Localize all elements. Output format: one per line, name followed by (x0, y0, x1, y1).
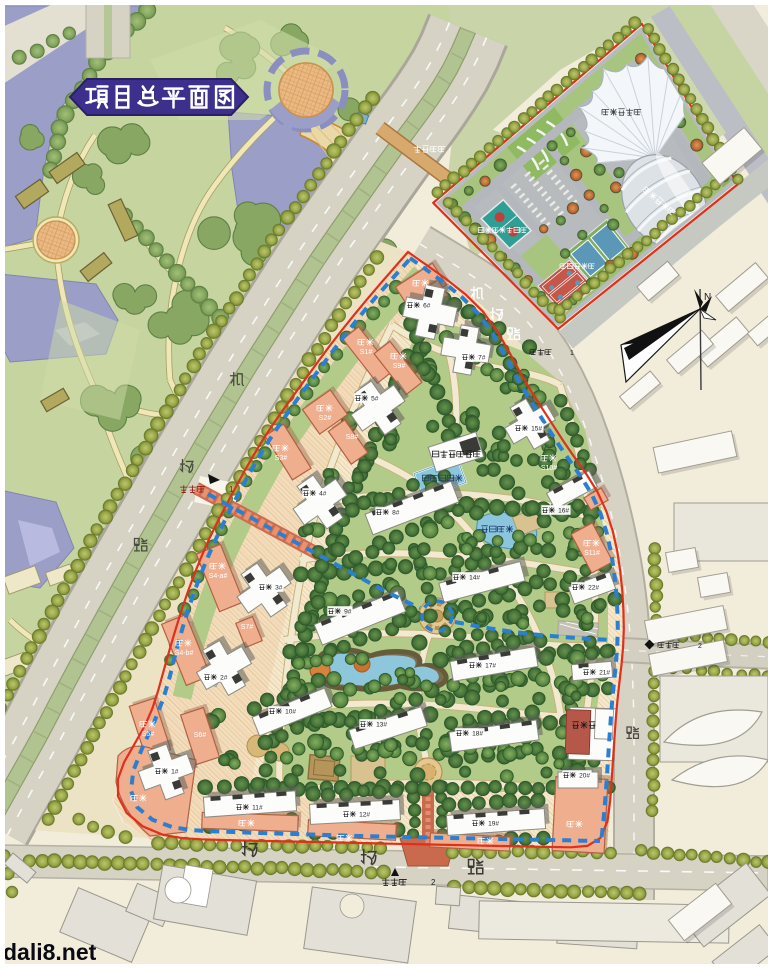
svg-text:S11#: S11# (584, 550, 600, 557)
svg-text:2#: 2# (220, 675, 228, 682)
svg-text:7#: 7# (478, 355, 486, 362)
svg-text:1: 1 (570, 350, 574, 357)
svg-text:20#: 20# (579, 773, 590, 780)
svg-text:12#: 12# (359, 812, 370, 819)
svg-text:3#: 3# (275, 585, 283, 592)
svg-text:17#: 17# (485, 663, 496, 670)
svg-text:N: N (704, 292, 711, 303)
svg-text:11#: 11# (252, 805, 263, 812)
svg-text:S5#: S5# (142, 731, 155, 738)
svg-text:19#: 19# (488, 821, 499, 828)
svg-text:S1#: S1# (360, 349, 373, 356)
svg-text:S9#: S9# (393, 363, 406, 370)
svg-text:2: 2 (431, 878, 436, 887)
svg-text:5#: 5# (371, 396, 379, 403)
svg-text:6#: 6# (423, 303, 431, 310)
svg-text:16#: 16# (558, 508, 569, 515)
svg-text:S4-b#: S4-b# (175, 650, 194, 657)
svg-text:S3#: S3# (275, 455, 288, 462)
svg-text:14#: 14# (469, 575, 480, 582)
svg-text:1: 1 (229, 485, 234, 494)
svg-text:S7#: S7# (241, 624, 254, 631)
svg-text:15#: 15# (531, 426, 542, 433)
svg-text:S10#: S10# (541, 465, 557, 472)
svg-text:18#: 18# (472, 731, 483, 738)
svg-text:S8#: S8# (346, 434, 359, 441)
svg-text:21#: 21# (599, 670, 610, 677)
svg-text:8#: 8# (392, 510, 400, 517)
svg-text:22#: 22# (588, 585, 599, 592)
svg-text:2: 2 (698, 643, 702, 650)
svg-text:13#: 13# (376, 722, 387, 729)
svg-text:dali8.net: dali8.net (3, 939, 97, 964)
svg-text:1#: 1# (171, 769, 179, 776)
svg-text:S6#: S6# (194, 732, 207, 739)
svg-text:9#: 9# (344, 609, 352, 616)
svg-text:S4-a#: S4-a# (209, 573, 228, 580)
svg-text:4#: 4# (319, 491, 327, 498)
svg-text:10#: 10# (285, 709, 296, 716)
svg-text:S2#: S2# (319, 415, 332, 422)
